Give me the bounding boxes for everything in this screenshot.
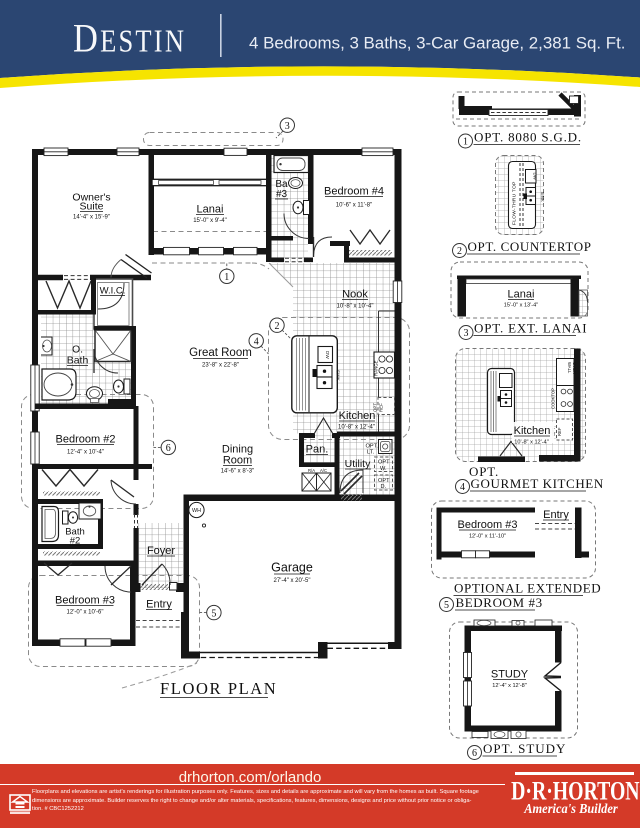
svg-text:Bedroom #3: Bedroom #3 — [458, 519, 518, 531]
svg-text:W.I.C.: W.I.C. — [100, 286, 126, 297]
svg-text:Bedroom #3: Bedroom #3 — [55, 595, 115, 607]
svg-text:FLOOR PLAN: FLOOR PLAN — [160, 679, 277, 698]
svg-text:2: 2 — [457, 246, 462, 257]
svg-text:OPT. 8080 S.G.D.: OPT. 8080 S.G.D. — [474, 130, 582, 145]
svg-text:OPTIONAL EXTENDED: OPTIONAL EXTENDED — [454, 581, 601, 596]
svg-text:4 Bedrooms, 3 Baths, 3-Car Gar: 4 Bedrooms, 3 Baths, 3-Car Garage, 2,381… — [249, 34, 625, 53]
svg-text:DW: DW — [325, 351, 330, 359]
svg-text:10'-8" x 12'-4": 10'-8" x 12'-4" — [338, 425, 375, 431]
svg-text:10'-6" x 11'-8": 10'-6" x 11'-8" — [336, 203, 372, 209]
svg-text:1: 1 — [463, 137, 468, 148]
svg-text:RANGE: RANGE — [374, 360, 379, 376]
svg-text:#2: #2 — [70, 536, 81, 547]
svg-text:Kitchen: Kitchen — [514, 425, 551, 437]
svg-text:Nook: Nook — [342, 289, 368, 301]
svg-text:6: 6 — [472, 748, 477, 759]
svg-text:REF: REF — [557, 427, 562, 436]
svg-text:Foyer: Foyer — [147, 545, 175, 557]
svg-text:BEDROOM #3: BEDROOM #3 — [456, 595, 543, 610]
svg-text:3: 3 — [464, 328, 469, 339]
svg-text:Lanai: Lanai — [508, 289, 535, 301]
svg-text:WH: WH — [192, 508, 201, 514]
svg-text:COOKTOP: COOKTOP — [551, 388, 556, 409]
svg-text:15'-0" x 9'-4": 15'-0" x 9'-4" — [193, 218, 227, 224]
svg-text:SINK: SINK — [540, 192, 545, 202]
svg-text:6: 6 — [166, 443, 171, 454]
svg-text:R/A: R/A — [308, 468, 315, 473]
svg-text:4: 4 — [460, 482, 465, 493]
svg-text:OVEN: OVEN — [572, 362, 577, 374]
svg-text:Suite: Suite — [80, 201, 104, 213]
svg-text:OPT: OPT — [378, 478, 390, 484]
svg-text:DW: DW — [533, 173, 538, 181]
svg-text:12'-0" x 10'-6": 12'-0" x 10'-6" — [67, 610, 104, 616]
svg-text:WALL: WALL — [567, 362, 572, 374]
svg-text:STUDY: STUDY — [491, 669, 529, 681]
svg-text:12'-0" x 11'-10": 12'-0" x 11'-10" — [469, 534, 506, 540]
svg-text:Bath: Bath — [67, 355, 89, 367]
svg-text:D.: D. — [381, 484, 387, 490]
svg-text:A/C: A/C — [320, 468, 327, 473]
svg-text:Entry: Entry — [146, 599, 172, 611]
svg-text:OPT. COUNTERTOP: OPT. COUNTERTOP — [468, 239, 592, 254]
svg-text:Entry: Entry — [543, 509, 569, 521]
svg-text:Pan.: Pan. — [306, 444, 329, 456]
svg-text:REF: REF — [379, 403, 384, 412]
svg-text:Bedroom #2: Bedroom #2 — [56, 434, 116, 446]
svg-text:2: 2 — [275, 321, 280, 332]
svg-text:FLOW-THRU TOP: FLOW-THRU TOP — [512, 181, 518, 225]
svg-text:10'-8" x 10'-4": 10'-8" x 10'-4" — [337, 304, 374, 310]
svg-text:5: 5 — [211, 608, 216, 619]
svg-text:OPT. EXT. LANAI: OPT. EXT. LANAI — [474, 321, 587, 336]
svg-text:12'-4" x 12'-8": 12'-4" x 12'-8" — [492, 683, 526, 689]
svg-text:1: 1 — [224, 272, 229, 283]
svg-text:SINK: SINK — [336, 370, 341, 382]
svg-text:Garage: Garage — [271, 561, 313, 575]
svg-text:Room: Room — [223, 455, 252, 467]
svg-text:14'-6" x 8'-3": 14'-6" x 8'-3" — [221, 469, 255, 475]
svg-text:23'-8" x 22'-8": 23'-8" x 22'-8" — [202, 363, 239, 369]
svg-text:#3: #3 — [276, 189, 288, 200]
svg-text:OPT. STUDY: OPT. STUDY — [483, 741, 566, 756]
svg-text:12'-4" x 10'-4": 12'-4" x 10'-4" — [67, 450, 104, 456]
svg-text:4: 4 — [254, 337, 259, 348]
svg-text:Kitchen: Kitchen — [339, 410, 376, 422]
svg-text:5: 5 — [444, 600, 449, 611]
svg-text:10'-8" x 12'-4": 10'-8" x 12'-4" — [514, 440, 548, 446]
svg-text:Bedroom #4: Bedroom #4 — [324, 186, 384, 198]
svg-text:Great Room: Great Room — [189, 347, 252, 359]
svg-text:27'-4" x 20'-5": 27'-4" x 20'-5" — [274, 578, 311, 584]
svg-text:Utility: Utility — [345, 458, 371, 470]
svg-text:W.: W. — [380, 466, 387, 472]
svg-text:15'-0" x 13'-4": 15'-0" x 13'-4" — [504, 303, 538, 309]
svg-text:LT.: LT. — [367, 450, 374, 456]
svg-text:14'-4" x 15'-9": 14'-4" x 15'-9" — [73, 215, 110, 221]
svg-text:Lanai: Lanai — [197, 204, 224, 216]
svg-text:3: 3 — [285, 121, 290, 132]
svg-text:GOURMET KITCHEN: GOURMET KITCHEN — [471, 476, 604, 491]
svg-text:OPT: OPT — [378, 460, 390, 466]
